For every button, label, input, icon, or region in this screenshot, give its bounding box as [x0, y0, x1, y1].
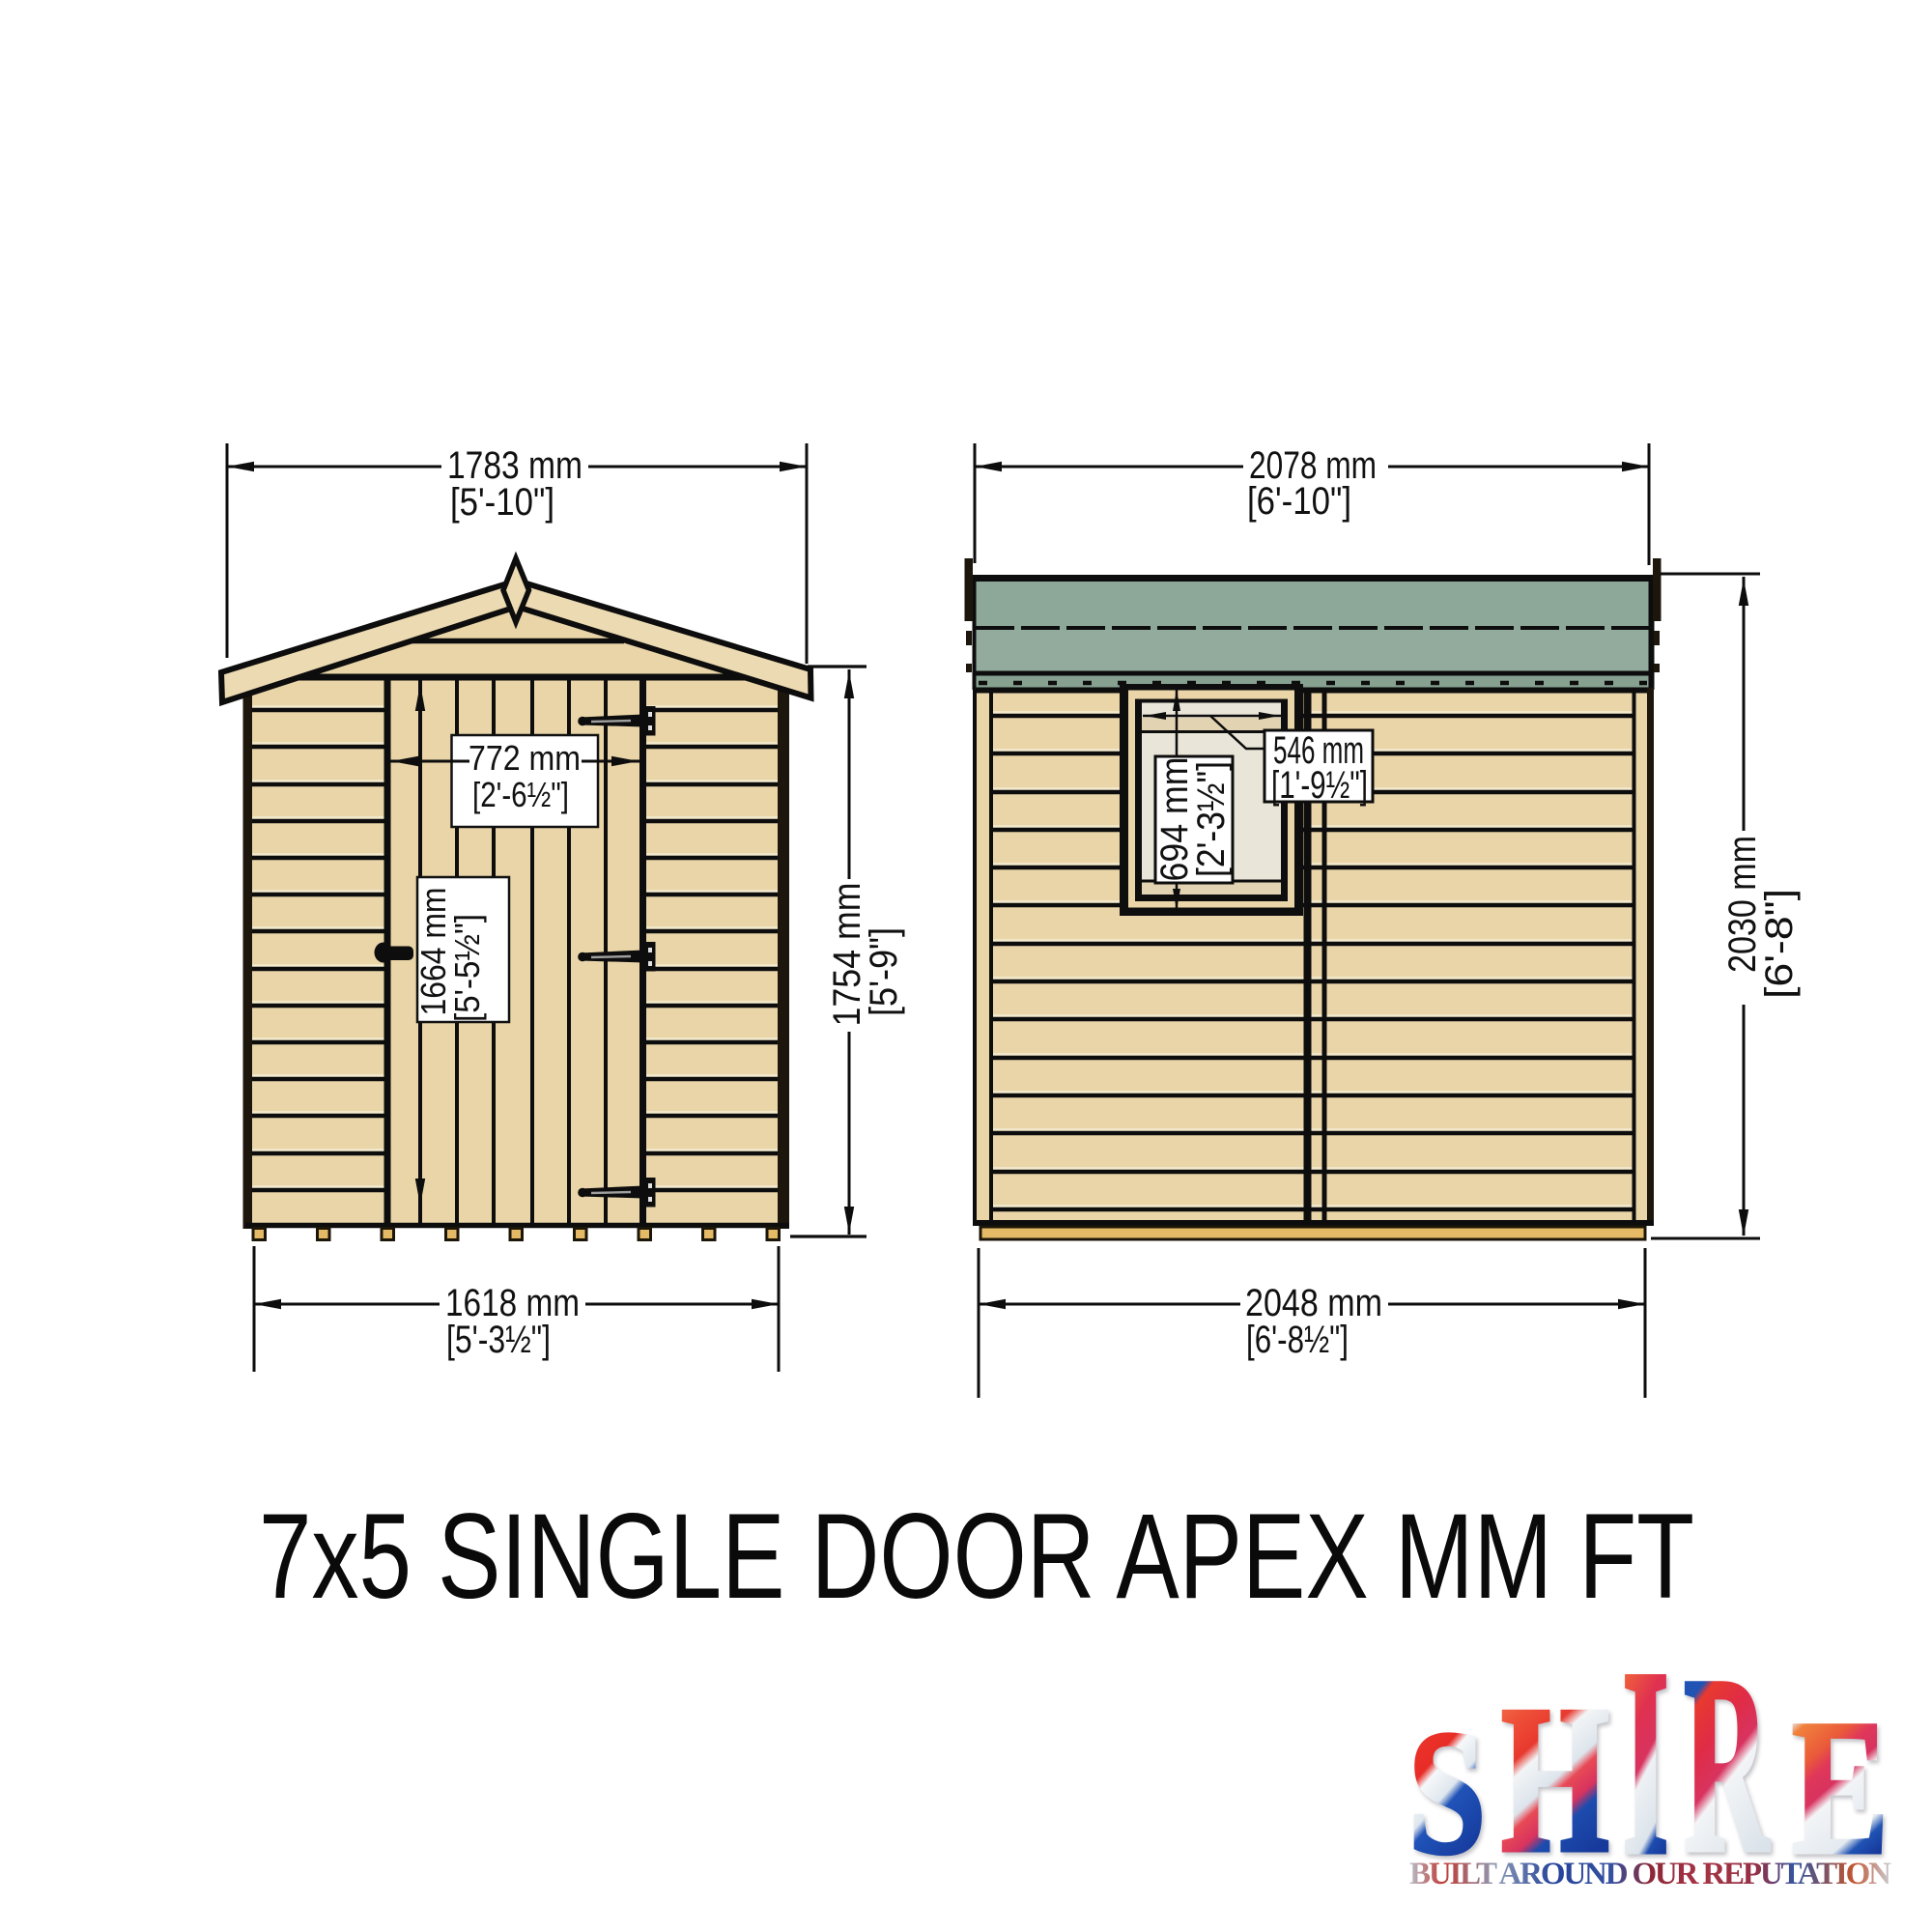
svg-text:[5'-9"]: [5'-9"] [863, 927, 905, 1016]
svg-text:[5'-3½"]: [5'-3½"] [446, 1319, 551, 1361]
svg-text:[5'-10"]: [5'-10"] [450, 481, 554, 524]
svg-text:[2'-3½"]: [2'-3½"] [1190, 761, 1233, 877]
svg-text:772 mm: 772 mm [469, 738, 581, 778]
svg-text:[5'-5½"]: [5'-5½"] [447, 914, 487, 1022]
svg-text:7x5 SINGLE DOOR APEX MM FT: 7x5 SINGLE DOOR APEX MM FT [259, 1490, 1694, 1624]
svg-text:[6'-8½"]: [6'-8½"] [1246, 1319, 1349, 1361]
svg-text:[2'-6½"]: [2'-6½"] [472, 775, 569, 814]
svg-text:[6'-10"]: [6'-10"] [1247, 480, 1351, 523]
svg-text:BUILT AROUND OUR REPUTATION: BUILT AROUND OUR REPUTATION [1409, 1857, 1891, 1891]
svg-text:[1'-9½"]: [1'-9½"] [1271, 764, 1368, 807]
svg-text:[6'-8"]: [6'-8"] [1758, 889, 1801, 999]
